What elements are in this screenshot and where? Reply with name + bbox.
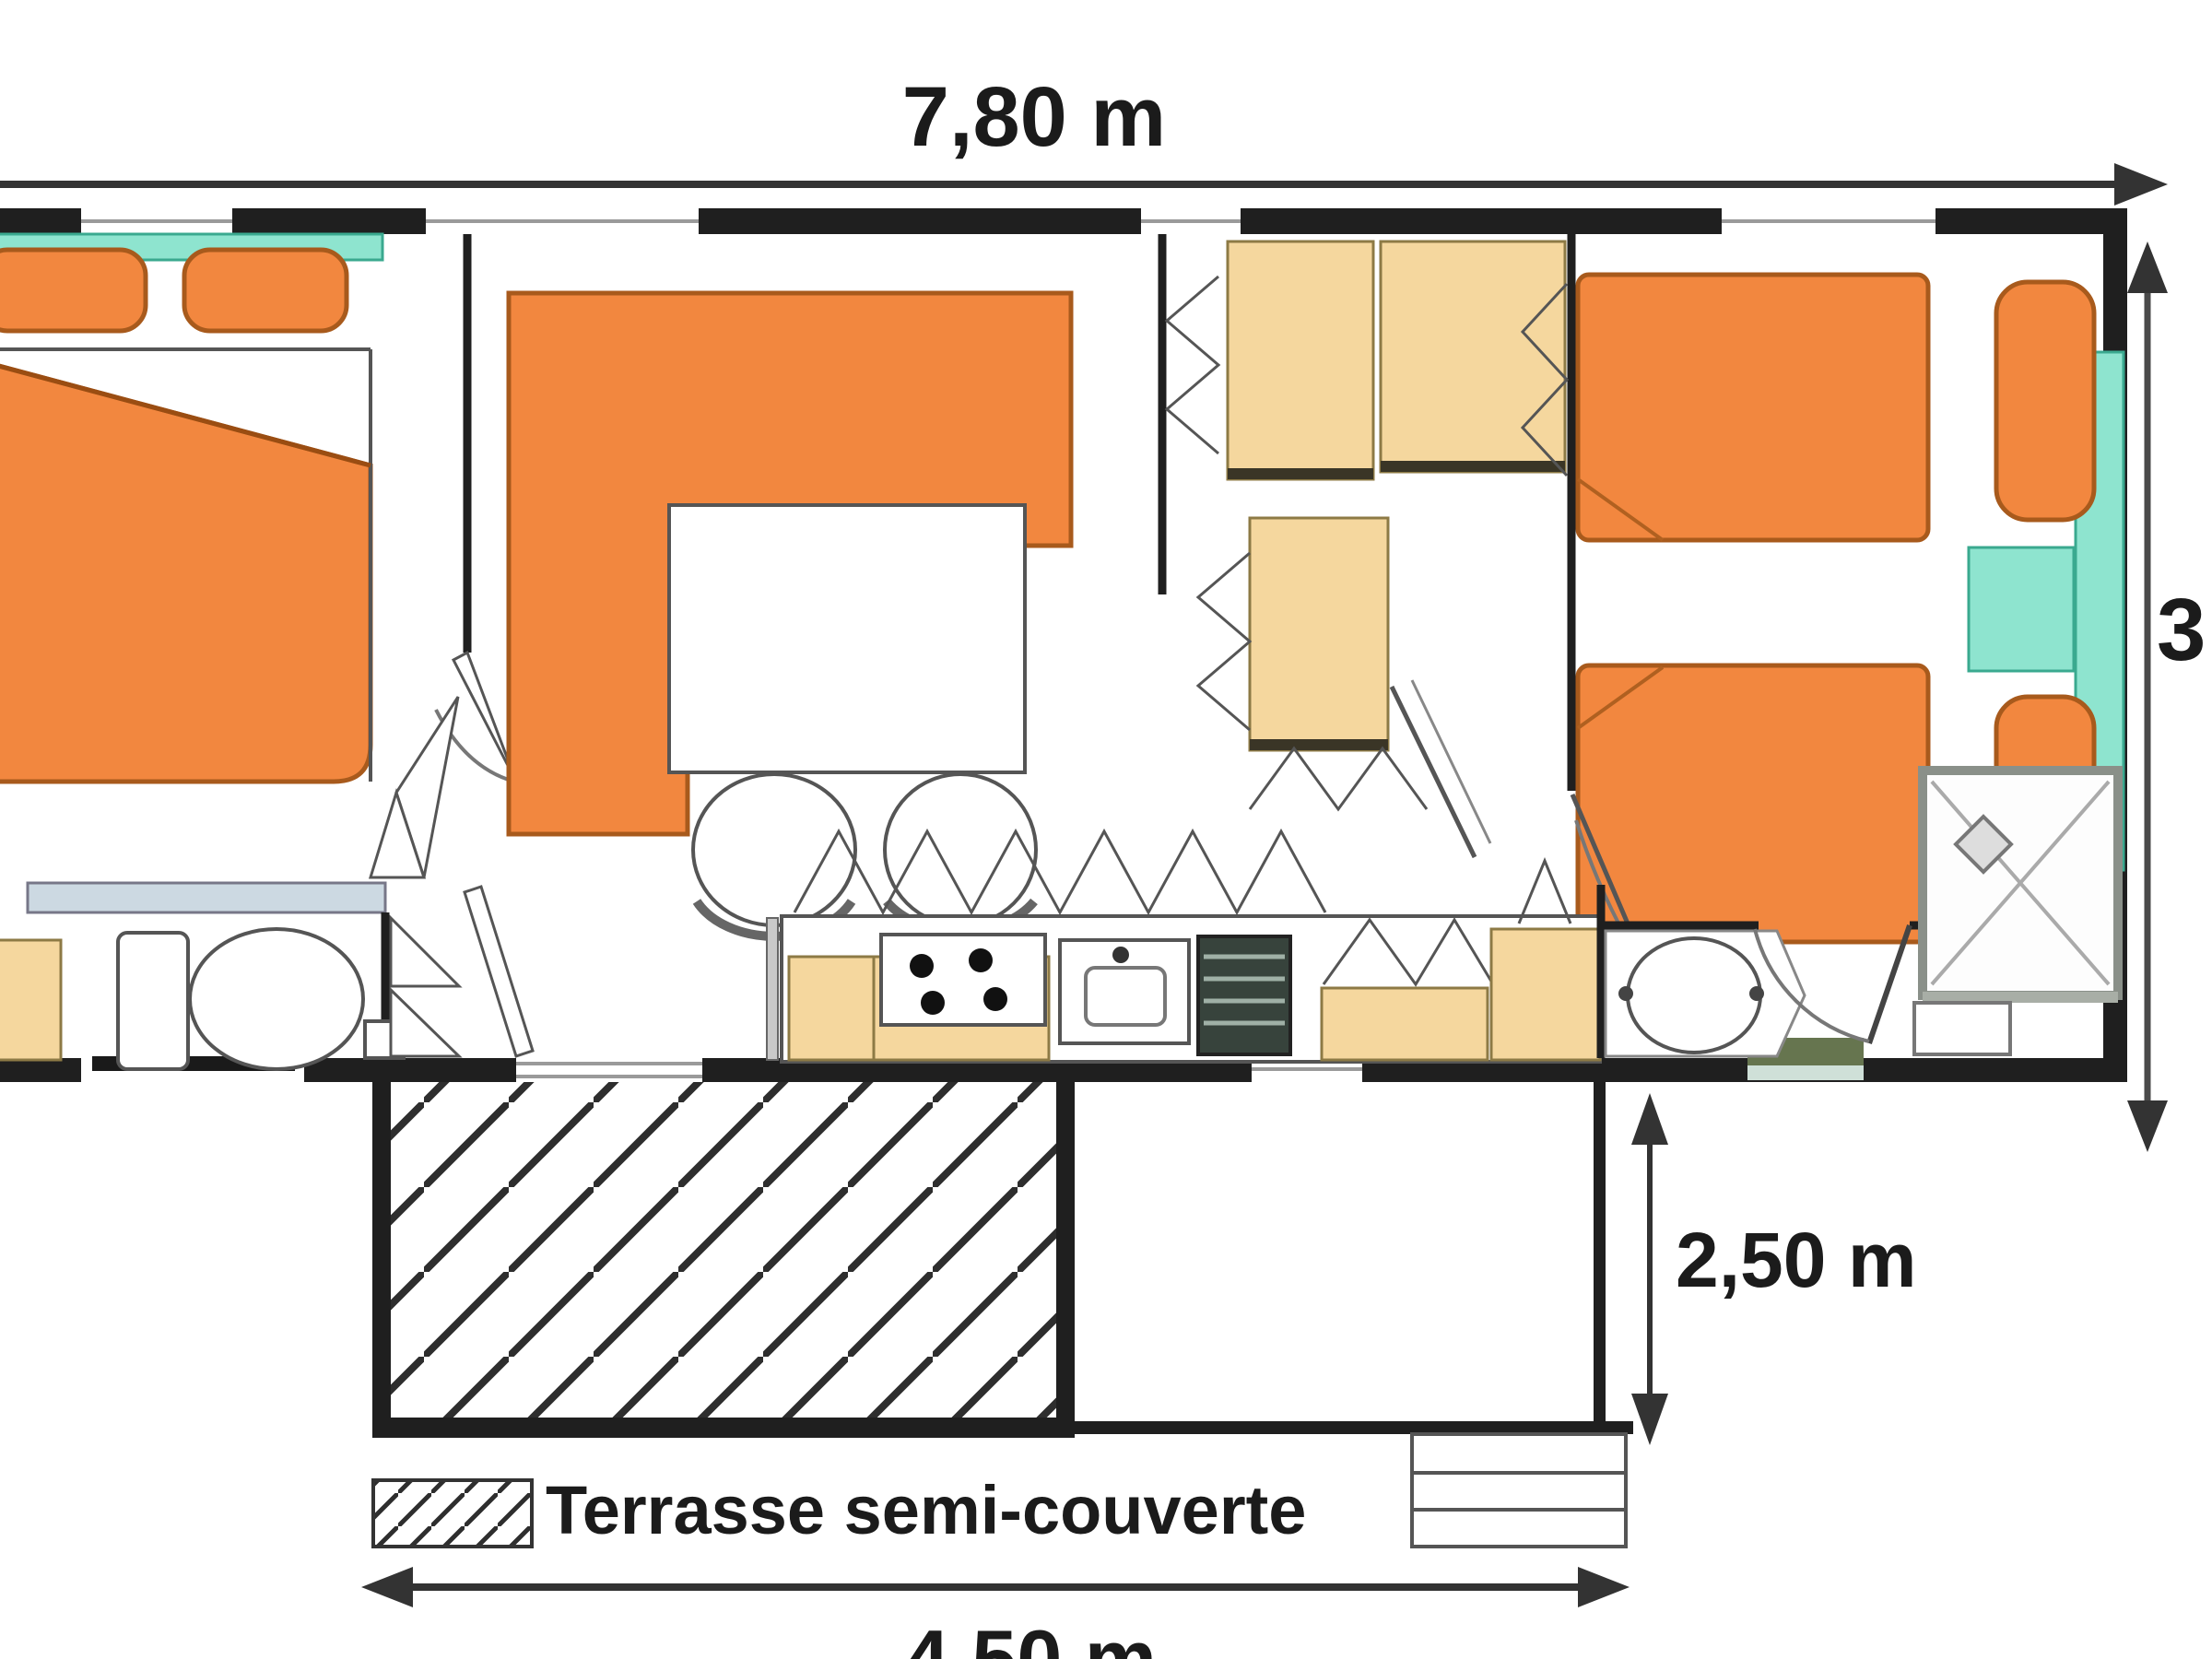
chair <box>693 774 855 936</box>
arrowhead-right-icon <box>2114 163 2168 206</box>
window-top-3 <box>1141 208 1241 234</box>
twin-bed <box>1578 665 1928 942</box>
arrowhead-down-icon <box>1631 1394 1668 1445</box>
dining-table <box>669 505 1025 772</box>
pillow <box>1996 282 2094 520</box>
cabinet <box>1250 518 1388 750</box>
wc-shelf <box>28 883 385 912</box>
wardrobe <box>1381 241 1565 472</box>
fridge <box>1198 936 1290 1054</box>
floorplan-drawing: 7,80 m 3 2,50 m 4,50 m Terrasse semi-cou… <box>0 0 2212 1659</box>
wc-room <box>0 883 459 1069</box>
shower <box>1914 771 2118 1054</box>
terrace-hatched <box>372 1082 1075 1438</box>
master-bed <box>0 361 371 782</box>
window-top-4 <box>1722 208 1935 234</box>
arrowhead-up-icon <box>2127 241 2168 293</box>
stove <box>881 935 1045 1025</box>
width-dimension-label: 7,80 m <box>902 70 1166 164</box>
twin-bed <box>1578 275 1928 540</box>
kids-room-door <box>1392 680 1490 857</box>
steps <box>1412 1434 1626 1547</box>
entry-door-leaf <box>465 887 533 1056</box>
living-room <box>509 293 1071 936</box>
arrowhead-right-icon <box>1578 1567 1630 1607</box>
tall-cabinet <box>1491 929 1600 1060</box>
bottom-dimension: 4,50 m <box>361 1567 1630 1659</box>
legend-hatch-swatch <box>373 1480 532 1547</box>
terrace-width-label: 4,50 m <box>904 1613 1157 1659</box>
terrace-depth-dimension: 2,50 m <box>1631 1093 1917 1445</box>
folding-door-icon <box>1198 553 1250 730</box>
toilet <box>118 929 404 1069</box>
wardrobe <box>1228 241 1373 479</box>
folding-door-icon <box>1519 861 1571 924</box>
legend: Terrasse semi-couverte <box>373 1472 1306 1548</box>
kids-bedroom <box>1162 234 1565 857</box>
pillow <box>0 250 146 331</box>
folding-door-icon <box>391 918 459 986</box>
terrace-open <box>1069 1082 1633 1434</box>
folding-door-icon <box>391 990 459 1056</box>
right-dimension: 3 <box>2127 241 2206 1152</box>
base-cabinet <box>789 957 874 1060</box>
nightstand <box>1969 547 2074 671</box>
washbasin <box>1606 931 1805 1056</box>
arrowhead-left-icon <box>361 1567 413 1607</box>
overhead-cupboards-icon <box>794 831 1325 912</box>
arrowhead-down-icon <box>2127 1100 2168 1152</box>
folding-door-icon <box>1167 276 1218 453</box>
terrace-depth-label: 2,50 m <box>1676 1217 1917 1303</box>
window-top-1 <box>81 208 232 234</box>
cabinet <box>0 940 61 1060</box>
floorplan-canvas: 7,80 m 3 2,50 m 4,50 m Terrasse semi-cou… <box>0 0 2212 1659</box>
master-bedroom-wall <box>436 234 516 782</box>
pillow <box>184 250 347 331</box>
sink <box>1060 940 1189 1043</box>
master-bedroom <box>0 234 382 782</box>
folding-door-icon <box>1250 748 1427 809</box>
shower-bench <box>1914 1003 2010 1054</box>
legend-label: Terrasse semi-couverte <box>546 1472 1306 1548</box>
window-top-2 <box>426 208 699 234</box>
arrowhead-up-icon <box>1631 1093 1668 1145</box>
base-cabinet <box>1322 988 1488 1060</box>
height-dimension-label: 3 <box>2157 581 2206 679</box>
top-dimension: 7,80 m <box>0 70 2168 206</box>
chair <box>885 774 1036 931</box>
entry-opening <box>516 1058 702 1082</box>
